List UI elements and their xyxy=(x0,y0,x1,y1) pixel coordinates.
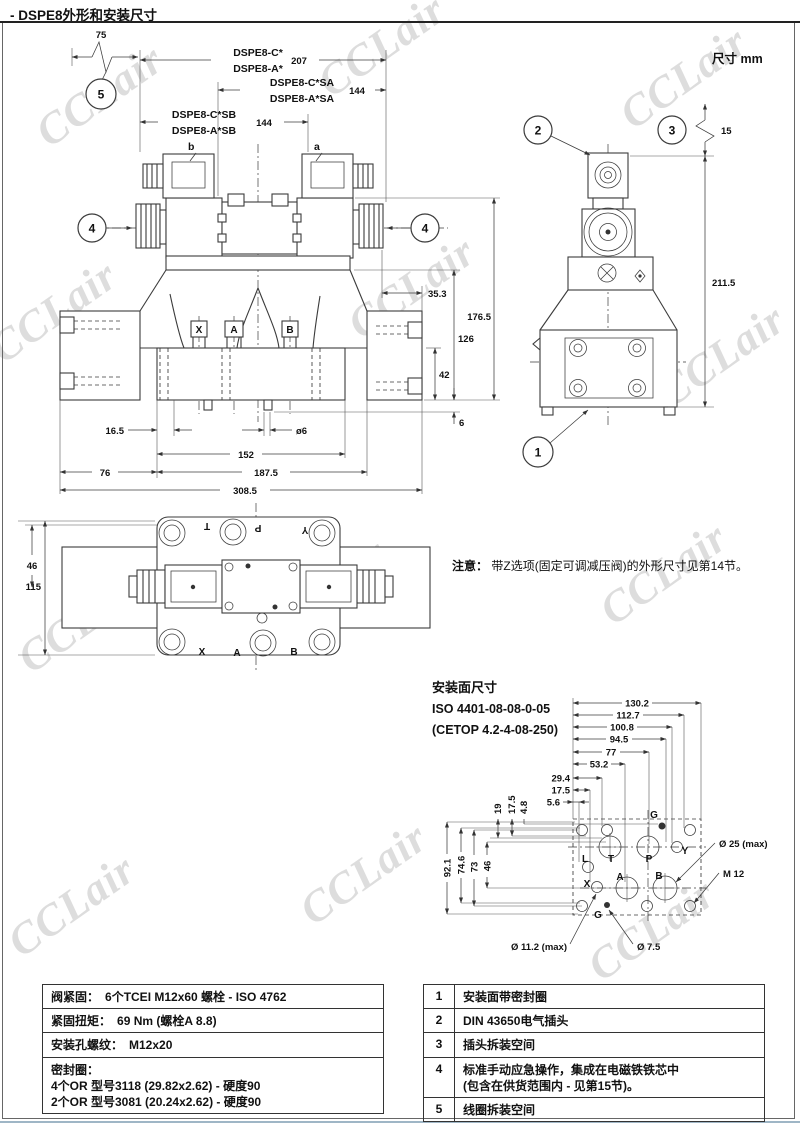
dim-74-6: 74.6 xyxy=(457,856,468,875)
legend-text: 安装面带密封圈 xyxy=(455,985,764,1008)
spec-row-seals: 密封圈： 4个OR 型号3118 (29.82x2.62) - 硬度90 2个O… xyxy=(43,1057,383,1114)
front-view-drawing: X A B 75 5 DSPE8-C* DSPE8-A* 207 xyxy=(8,26,528,498)
port-t-label: T xyxy=(204,520,210,531)
spec-row-torque: 紧固扭矩：69 Nm (螺栓A 8.8) xyxy=(43,1008,383,1032)
legend-text: 插头拆装空间 xyxy=(455,1033,764,1056)
side-view-drawing: 2 3 15 211.5 1 xyxy=(518,92,794,484)
dim-46: 46 xyxy=(27,561,38,572)
legend-number: 5 xyxy=(424,1098,455,1121)
title-rule xyxy=(0,21,800,23)
mounting-face-pattern xyxy=(568,810,706,924)
port-a-label: A xyxy=(230,325,237,336)
coil-b-label: b xyxy=(188,141,194,153)
port-x-label: X xyxy=(199,647,206,658)
dim-144-sa: 144 xyxy=(349,86,366,97)
mounting-callouts: Ø 25 (max) M 12 Ø 11.2 (max) Ø 7.5 xyxy=(511,839,768,953)
z-option-note: 注意： 带Z选项(固定可调减压阀)的外形尺寸见第14节。 xyxy=(452,557,792,574)
model-a-sb: DSPE8-A*SB xyxy=(172,125,237,137)
balloon-4-right: 4 xyxy=(422,222,429,236)
legend-text: 标准手动应急操作，集成在电磁铁铁芯中 (包含在供货范围内 - 见第15节)。 xyxy=(455,1058,764,1097)
port-p: P xyxy=(646,854,653,865)
dim-53-2: 53.2 xyxy=(590,760,609,771)
dim-211-5: 211.5 xyxy=(712,278,736,289)
spec-seal-line2: 2个OR 型号3081 (20.24x2.62) - 硬度90 xyxy=(51,1094,375,1110)
port-p-label: P xyxy=(254,522,261,533)
mounting-iso: ISO 4401-08-08-0-05 xyxy=(432,702,550,716)
dim-15: 15 xyxy=(721,126,732,137)
port-g-top: G xyxy=(650,810,658,821)
dim-42: 42 xyxy=(439,370,450,381)
dim-75: 75 xyxy=(96,30,107,41)
dim-130-2: 130.2 xyxy=(625,699,649,710)
dim-5-6: 5.6 xyxy=(547,798,560,809)
spec-row-fixing: 阀紧固：6个TCEI M12x60 螺栓 - ISO 4762 xyxy=(43,985,383,1008)
legend-number: 1 xyxy=(424,985,455,1008)
spec-seal-line1: 4个OR 型号3118 (29.82x2.62) - 硬度90 xyxy=(51,1078,375,1094)
dim-100-8: 100.8 xyxy=(610,723,634,734)
port-x: X xyxy=(584,879,591,890)
spec-table: 阀紧固：6个TCEI M12x60 螺栓 - ISO 4762 紧固扭矩：69 … xyxy=(42,984,384,1114)
legend-row: 1 安装面带密封圈 xyxy=(424,985,764,1008)
port-y: Y xyxy=(682,846,689,857)
port-b: B xyxy=(655,871,662,882)
dim-4-8: 4.8 xyxy=(519,801,530,814)
port-b-label: B xyxy=(286,325,293,336)
legend-number: 4 xyxy=(424,1058,455,1097)
legend-number: 3 xyxy=(424,1033,455,1056)
mounting-cetop: (CETOP 4.2-4-08-250) xyxy=(432,723,558,737)
dim-187-5: 187.5 xyxy=(254,468,278,479)
legend-text-line2: (包含在供货范围内 - 见第15节)。 xyxy=(463,1078,756,1094)
balloon-5: 5 xyxy=(98,88,105,102)
port-l: L xyxy=(582,854,588,865)
port-t: T xyxy=(608,854,614,865)
spec-label: 紧固扭矩： xyxy=(51,1014,111,1028)
mounting-title: 安装面尺寸 xyxy=(432,680,497,695)
note-text: 带Z选项(固定可调减压阀)的外形尺寸见第14节。 xyxy=(491,559,748,573)
dim-46m: 46 xyxy=(483,861,494,872)
dim-73: 73 xyxy=(470,862,481,873)
units-label: 尺寸 mm xyxy=(712,48,763,67)
front-manifold: X A B xyxy=(60,256,422,410)
dim-6: 6 xyxy=(459,418,464,429)
dim-76: 76 xyxy=(100,468,111,479)
model-a: DSPE8-A* xyxy=(233,63,284,75)
spec-label: 安装孔螺纹： xyxy=(51,1038,123,1052)
callout-d75: Ø 7.5 xyxy=(637,942,661,953)
dim-94-5: 94.5 xyxy=(610,735,629,746)
balloon-1: 1 xyxy=(535,446,542,460)
spec-label: 密封圈： xyxy=(51,1062,375,1078)
port-b-label: B xyxy=(290,647,297,658)
model-c-sb: DSPE8-C*SB xyxy=(172,109,237,121)
balloon-3: 3 xyxy=(669,124,676,138)
callout-d25: Ø 25 (max) xyxy=(719,839,768,850)
dim-19: 19 xyxy=(493,803,504,814)
balloon-4-left: 4 xyxy=(89,222,96,236)
dim-29-4: 29.4 xyxy=(552,774,571,785)
model-c: DSPE8-C* xyxy=(233,47,284,59)
spec-label: 阀紧固： xyxy=(51,990,99,1004)
mounting-port-letters: G L T P Y A B X G xyxy=(582,810,689,921)
dim-17-5h: 17.5 xyxy=(552,786,571,797)
dim-17-5v: 17.5 xyxy=(507,795,518,814)
legend-number: 2 xyxy=(424,1009,455,1032)
mounting-face-titles: 安装面尺寸 ISO 4401-08-08-0-05 (CETOP 4.2-4-0… xyxy=(432,680,558,737)
legend-table: 1 安装面带密封圈 2 DIN 43650电气插头 3 插头拆装空间 4 标准手… xyxy=(423,984,765,1122)
dim-112-7: 112.7 xyxy=(616,711,639,722)
legend-row: 4 标准手动应急操作，集成在电磁铁铁芯中 (包含在供货范围内 - 见第15节)。 xyxy=(424,1057,764,1097)
mounting-face-drawing: 安装面尺寸 ISO 4401-08-08-0-05 (CETOP 4.2-4-0… xyxy=(430,676,798,972)
datasheet-page: CCLair CCLair CCLair CCLair CCLair CCLai… xyxy=(0,0,800,1127)
dim-35-3: 35.3 xyxy=(428,289,447,300)
port-g-bottom: G xyxy=(594,910,602,921)
spec-value: 6个TCEI M12x60 螺栓 - ISO 4762 xyxy=(105,990,286,1004)
spec-row-thread: 安装孔螺纹：M12x20 xyxy=(43,1032,383,1056)
spec-value: 69 Nm (螺栓A 8.8) xyxy=(117,1014,217,1028)
dim-o6: ø6 xyxy=(296,426,307,437)
balloon-2: 2 xyxy=(535,124,542,138)
dim-126: 126 xyxy=(458,334,474,345)
dim-77: 77 xyxy=(606,748,617,759)
legend-row: 5 线圈拆装空间 xyxy=(424,1097,764,1121)
port-x-label: X xyxy=(196,325,203,336)
note-label: 注意： xyxy=(452,559,488,573)
port-y-label: Y xyxy=(301,524,308,535)
side-valve-body xyxy=(530,144,686,426)
dim-16-5: 16.5 xyxy=(106,426,125,437)
dim-144-sb: 144 xyxy=(256,118,273,129)
coil-a-label: a xyxy=(314,141,320,153)
model-a-sa: DSPE8-A*SA xyxy=(270,93,335,105)
legend-text-line1: 标准手动应急操作，集成在电磁铁铁芯中 xyxy=(463,1062,756,1078)
port-a: A xyxy=(616,872,623,883)
top-view-body xyxy=(62,503,430,671)
callout-m12: M 12 xyxy=(723,869,744,880)
legend-text: 线圈拆装空间 xyxy=(455,1098,764,1121)
dim-152: 152 xyxy=(238,450,254,461)
dim-176-5: 176.5 xyxy=(467,312,491,323)
legend-text: DIN 43650电气插头 xyxy=(455,1009,764,1032)
dim-115: 115 xyxy=(26,582,42,593)
port-a-label: A xyxy=(233,648,240,659)
callout-d11: Ø 11.2 (max) xyxy=(511,942,567,953)
model-c-sa: DSPE8-C*SA xyxy=(270,77,335,89)
spec-value: M12x20 xyxy=(129,1038,172,1052)
legend-row: 3 插头拆装空间 xyxy=(424,1032,764,1056)
top-view-drawing: T P Y X A B 115 46 xyxy=(5,495,455,680)
dim-92-1: 92.1 xyxy=(443,858,454,877)
legend-row: 2 DIN 43650电气插头 xyxy=(424,1008,764,1032)
dim-207: 207 xyxy=(291,56,307,67)
